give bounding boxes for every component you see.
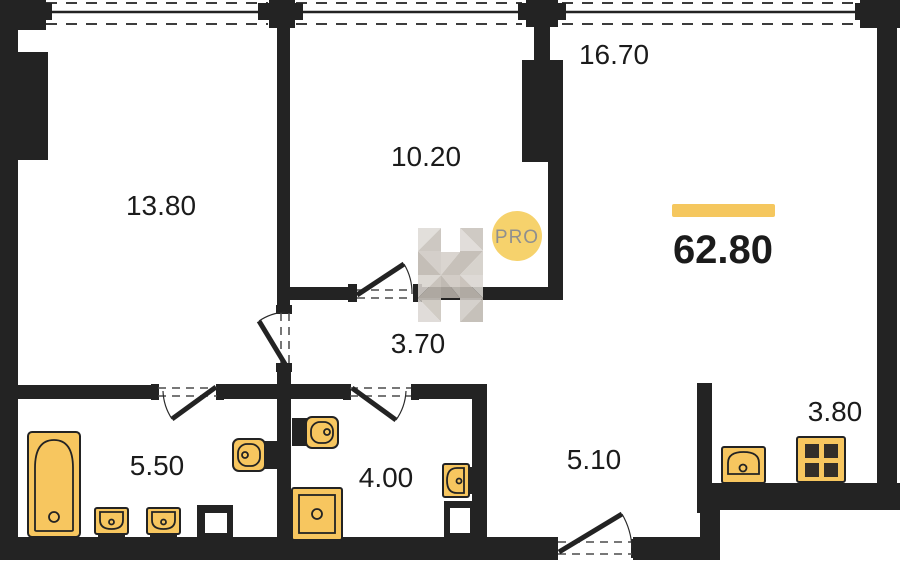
wall-left-pier [0, 52, 48, 160]
floor-plan-canvas: PRO 13.80 10.20 16.70 3.70 5.50 4.00 5.1… [0, 0, 900, 565]
wall-1020-1670-pillar [522, 60, 563, 162]
wall-divider-1380-1020 [277, 25, 290, 312]
wall-1020-1670-neck [534, 27, 550, 63]
door-jamb [631, 539, 640, 558]
stove-fixture [797, 437, 845, 487]
wall-1020-1670-pier [526, 0, 558, 27]
window-cap [557, 3, 566, 20]
room-area-label: 5.10 [567, 444, 622, 475]
door-jamb [549, 539, 558, 558]
room-area-label: 13.80 [126, 190, 196, 221]
door-jamb [343, 384, 351, 400]
wall-1020-bottom-a [283, 287, 357, 300]
floor-plan: PRO 13.80 10.20 16.70 3.70 5.50 4.00 5.1… [0, 0, 900, 565]
pro-badge-label: PRO [495, 227, 539, 248]
door-entry [558, 514, 632, 554]
wall-bottom-left [0, 537, 558, 560]
wall-hall-bottom-b [217, 384, 350, 399]
total-area-value: 62.80 [673, 228, 773, 272]
wall-hall-bottom-a [18, 385, 158, 399]
door-jamb [151, 384, 159, 400]
kitchen-sink-fixture [722, 447, 765, 487]
wall-1020-1670 [548, 160, 563, 300]
sink-fixture [147, 508, 180, 539]
room-area-label: 3.70 [391, 328, 446, 359]
wall-corner-top-left [0, 0, 46, 30]
wall-divider-top-pier [269, 0, 295, 28]
door-1380-hall [259, 312, 289, 364]
wall-510-right-foot [700, 505, 720, 547]
wall-510-right [697, 383, 712, 513]
window-cap [42, 3, 52, 20]
bathtub-fixture [28, 432, 80, 537]
total-area-accent-bar [672, 204, 775, 217]
shaft [444, 501, 485, 540]
shower-fixture [292, 488, 342, 540]
developer-logo [418, 228, 483, 322]
room-area-label: 10.20 [391, 141, 461, 172]
window-cap [518, 3, 527, 20]
door-550-hall [158, 387, 217, 419]
wall-right [877, 25, 897, 510]
windows [46, 3, 860, 24]
door-jamb [411, 384, 419, 400]
wall-corner-top-right [860, 0, 900, 28]
shaft [197, 505, 233, 540]
total-area: 62.80 [672, 204, 775, 272]
sink-fixture [443, 464, 476, 497]
door-jamb [216, 384, 224, 400]
toilet-fixture [233, 439, 278, 471]
watermark: PRO [418, 211, 542, 322]
room-area-label: 4.00 [359, 462, 414, 493]
room-area-label: 5.50 [130, 450, 185, 481]
room-area-label: 3.80 [808, 396, 863, 427]
door-400-hall [350, 388, 411, 420]
room-area-label: 16.70 [579, 39, 649, 70]
door-1020-hall [357, 264, 413, 298]
sink-fixture [95, 508, 128, 539]
door-jamb [348, 284, 357, 302]
wall-niche-bottom [710, 483, 900, 510]
window-cap [855, 3, 864, 20]
toilet-fixture [292, 417, 338, 448]
pro-badge: PRO [492, 211, 542, 261]
window-cap [258, 3, 269, 20]
